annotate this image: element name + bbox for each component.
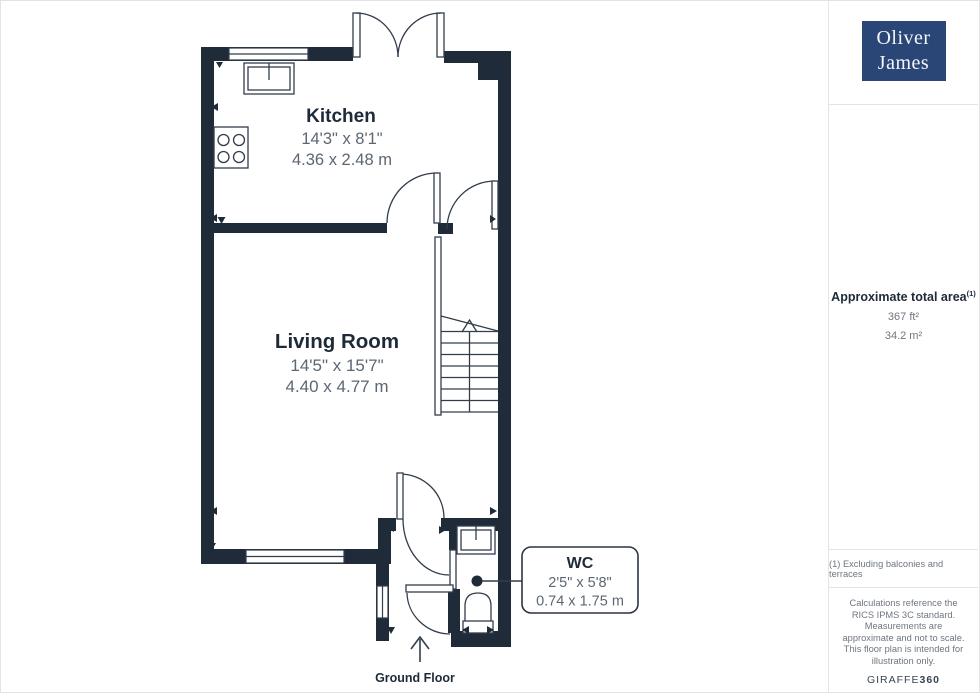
door-leaf: [397, 473, 403, 519]
floorplan-drawing: Kitchen 14'3" x 8'1" 4.36 x 2.48 m Livin…: [1, 1, 828, 692]
living-room-window: [246, 550, 344, 563]
footnote-marker: (1): [967, 289, 976, 298]
room-dim-imperial: 14'5" x 15'7": [290, 356, 383, 375]
room-dim-metric: 4.40 x 4.77 m: [285, 377, 388, 396]
stair-rail: [435, 237, 441, 415]
door-swing-arc: [356, 13, 398, 57]
room-dim-imperial: 2'5" x 5'8": [548, 575, 611, 591]
callout-anchor-dot: [472, 576, 483, 587]
logo-line-1: Oliver: [876, 26, 930, 51]
hob-icon: [214, 127, 248, 168]
wall-left: [201, 47, 214, 564]
wc-sink-icon: [457, 526, 495, 554]
living-room-label: Living Room 14'5" x 15'7" 4.40 x 4.77 m: [275, 330, 399, 396]
total-area-title: Approximate total area(1): [829, 289, 978, 304]
info-sidebar: Oliver James Approximate total area(1) 3…: [828, 1, 978, 692]
front-door: [406, 585, 453, 634]
door-leaf: [450, 550, 456, 589]
door-leaf: [406, 585, 453, 592]
door-swing-arc: [400, 474, 444, 518]
room-dim-metric: 0.74 x 1.75 m: [536, 594, 624, 610]
door-swing-arc: [398, 13, 441, 57]
french-door-right: [398, 13, 444, 57]
disclaimer-text: Calculations reference the RICS IPMS 3C …: [841, 598, 966, 668]
kitchen-sink-icon: [244, 63, 294, 94]
total-area-imperial: 367 ft²: [829, 311, 978, 323]
room-dim-imperial: 14'3" x 8'1": [301, 130, 382, 148]
hallway-window: [377, 586, 388, 618]
floorplan-page: Kitchen 14'3" x 8'1" 4.36 x 2.48 m Livin…: [0, 0, 980, 693]
logo-section: Oliver James: [829, 1, 978, 105]
door-leaf: [353, 13, 360, 57]
door-leaf: [437, 13, 444, 57]
french-door-left: [353, 13, 398, 57]
giraffe360-watermark: GIRAFFE360: [829, 674, 978, 686]
wall-right: [498, 51, 511, 647]
total-area-metric: 34.2 m²: [829, 330, 978, 342]
stair-treads: [441, 332, 498, 413]
living-room-door: [397, 473, 444, 519]
door-swing-arc: [447, 181, 495, 229]
disclaimer-section: Calculations reference the RICS IPMS 3C …: [829, 587, 978, 692]
door-swing-arc: [407, 593, 450, 634]
footnote-text: (1) Excluding balconies and terraces: [829, 559, 978, 579]
wall-stub-hall: [438, 223, 453, 234]
room-name: Living Room: [275, 330, 399, 353]
room-name: WC: [567, 555, 594, 572]
footnote-section: (1) Excluding balconies and terraces: [829, 549, 978, 588]
kitchen-label: Kitchen 14'3" x 8'1" 4.36 x 2.48 m: [292, 106, 392, 169]
kitchen-door: [387, 173, 440, 223]
room-name: Kitchen: [306, 106, 376, 127]
wc-callout: WC 2'5" x 5'8" 0.74 x 1.75 m: [472, 547, 639, 613]
door-swing-arc: [387, 173, 437, 223]
door-leaf: [434, 173, 440, 223]
wall-top-right: [444, 51, 498, 63]
logo-line-2: James: [878, 51, 929, 76]
door-leaf: [492, 181, 498, 229]
staircase: [435, 237, 498, 415]
wall-kitchen-living-divider: [214, 223, 387, 233]
room-dim-metric: 4.36 x 2.48 m: [292, 151, 392, 169]
agency-logo: Oliver James: [862, 21, 946, 81]
entry-arrow-icon: [411, 637, 429, 662]
wall-front-door-block: [448, 589, 460, 633]
total-area-block: Approximate total area(1) 367 ft² 34.2 m…: [829, 289, 978, 342]
stair-walk-line: [441, 316, 498, 331]
floor-label: Ground Floor: [375, 671, 455, 685]
kitchen-window: [229, 48, 308, 60]
